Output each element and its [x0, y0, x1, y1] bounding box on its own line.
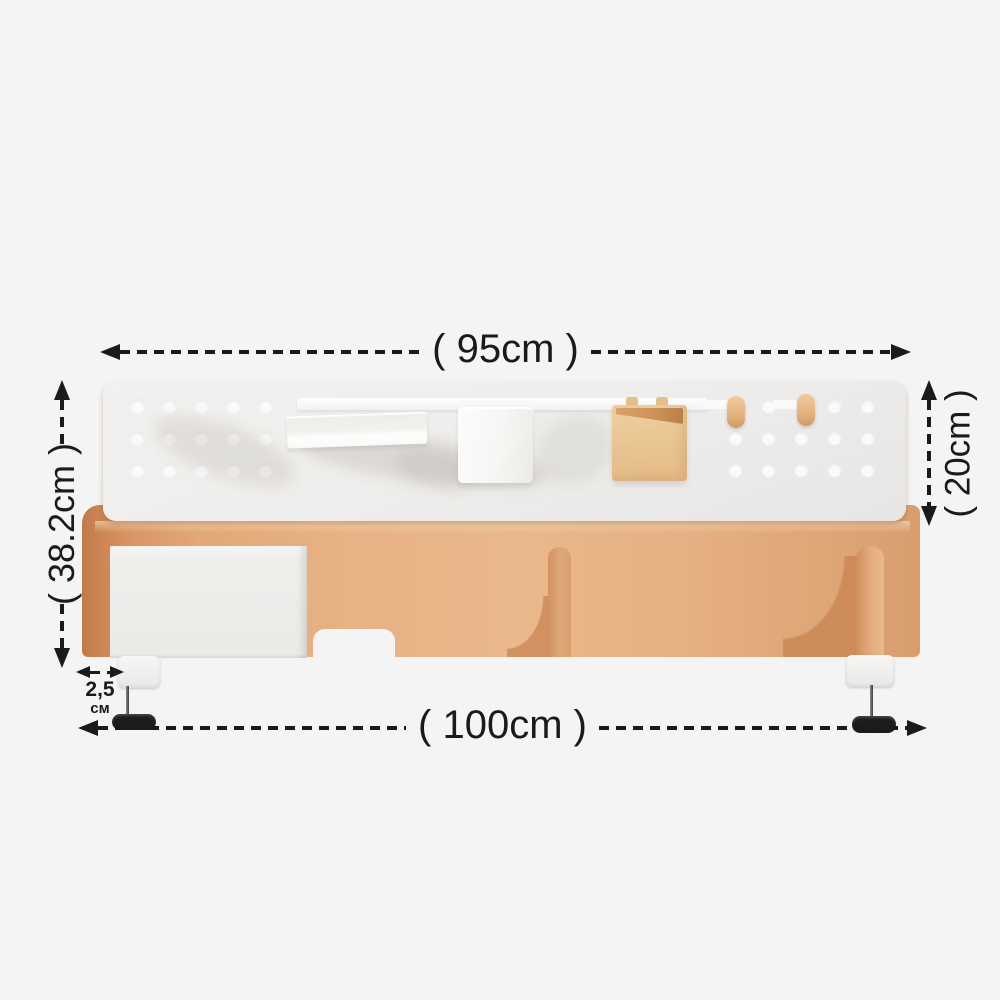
dashed-line: [599, 726, 907, 730]
rail-stub: [703, 400, 729, 409]
clamp-thickness-unit: см: [70, 701, 130, 717]
peg-hole: [762, 463, 775, 476]
arrow-right-icon: [110, 666, 124, 678]
clamp-rod-right: [870, 685, 873, 717]
dimension-label-top: ( 95cm ): [420, 329, 591, 369]
arrow-down-icon: [921, 506, 937, 526]
wood-top-highlight: [95, 521, 910, 533]
dashed-line: [98, 726, 406, 730]
peg-hole: [795, 431, 808, 444]
arrow-up-icon: [54, 380, 70, 400]
arrow-down-icon: [54, 648, 70, 668]
arrow-left-icon: [78, 720, 98, 736]
wood-cable-notch: [313, 629, 395, 658]
drawer-box: [110, 546, 307, 658]
peg-hole: [861, 431, 874, 444]
dimension-bottom-width: ( 100cm ): [78, 714, 927, 742]
dimension-label-clamp: 2,5 см: [70, 679, 130, 717]
dashed-line: [591, 350, 891, 354]
dimension-top-width: ( 95cm ): [100, 338, 911, 366]
arrow-right-icon: [891, 344, 911, 360]
dashed-line: [90, 671, 110, 674]
desk-clamp-right: [846, 655, 894, 687]
wood-peg: [727, 396, 745, 428]
arrow-left-icon: [100, 344, 120, 360]
dashed-line: [60, 400, 64, 444]
rail-stub: [773, 400, 799, 409]
peg-hole: [729, 463, 742, 476]
dimension-right-label-wrap: ( 20cm ): [936, 378, 980, 528]
peg-hole: [861, 399, 874, 412]
arrow-left-icon: [76, 666, 90, 678]
product-dimension-diagram: ( 95cm ) ( 100cm ) ( 38.2cm ) ( 20cm ) 2: [0, 0, 1000, 1000]
dimension-label-bottom: ( 100cm ): [406, 705, 599, 745]
peg-hole: [729, 431, 742, 444]
peg-hole: [795, 463, 808, 476]
peg-hole: [828, 463, 841, 476]
divider-post: [548, 547, 571, 657]
pen-cup: [458, 407, 533, 483]
clamp-thickness-value: 2,5: [70, 679, 130, 701]
dimension-label-right: ( 20cm ): [941, 389, 976, 517]
arrow-right-icon: [907, 720, 927, 736]
dashed-line: [60, 604, 64, 648]
dimension-label-left: ( 38.2cm ): [44, 443, 80, 605]
peg-hole: [762, 431, 775, 444]
dashed-line: [120, 350, 420, 354]
peg-hole: [828, 399, 841, 412]
bookend-bracket-post: [856, 546, 884, 657]
wood-peg: [797, 394, 815, 426]
dimension-left-height: ( 38.2cm ): [50, 380, 74, 668]
arrow-up-icon: [921, 380, 937, 400]
label-wrap: ( 38.2cm ): [50, 444, 74, 604]
bookend-bracket-slope: [783, 556, 858, 657]
dashed-line: [927, 400, 931, 506]
peg-hole: [861, 463, 874, 476]
peg-hole: [828, 431, 841, 444]
tray: [286, 412, 427, 449]
divider-bracket-slope: [507, 596, 549, 657]
